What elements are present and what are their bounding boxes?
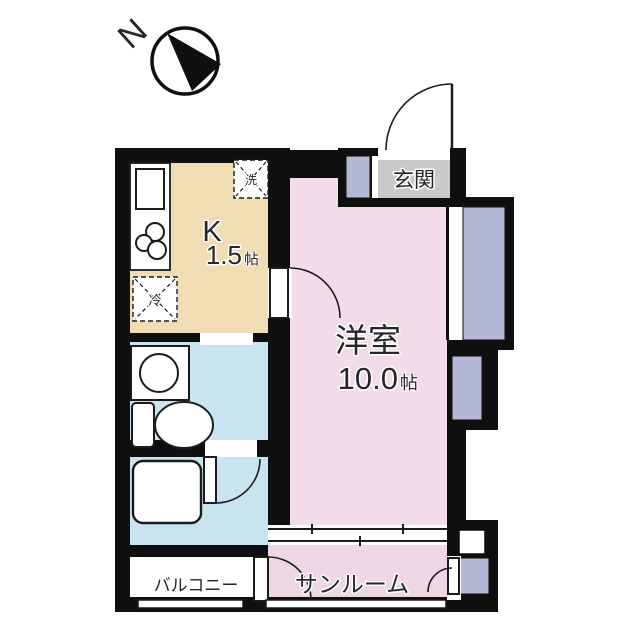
meter-box	[459, 530, 485, 554]
closet-a-door	[447, 207, 463, 340]
shoe-cabinet-gap	[372, 156, 378, 198]
living-room-size-unit: 帖	[400, 373, 418, 393]
bath-door-leaf	[204, 457, 216, 503]
washer-label: 洗	[245, 173, 257, 187]
kitchen-size: 1.5	[206, 240, 242, 270]
living-room-label: 洋室	[335, 322, 401, 359]
entrance-opening	[378, 148, 450, 160]
toilet-bowl	[155, 402, 213, 448]
washing-machine-box: 洗	[234, 160, 268, 198]
sunroom-left-door-leaf	[254, 557, 268, 601]
closet-b	[452, 356, 482, 420]
living-room-size: 10.0	[338, 361, 398, 396]
north-label: N	[111, 11, 155, 56]
kitchen-sink	[136, 169, 164, 209]
compass: N	[111, 11, 221, 94]
bathroom-fixtures	[133, 461, 201, 523]
floor-plan-page: 洗 冷 N 玄関 K 1.5 帖 洋室 10.0 帖 サンルーム バル	[0, 0, 640, 640]
bathtub	[133, 461, 201, 523]
toilet-tank	[132, 403, 154, 447]
sliding-window	[268, 524, 447, 546]
pipe-space	[459, 558, 489, 594]
fridge-label: 冷	[148, 293, 161, 308]
bath-door-opening	[205, 440, 257, 457]
fridge-box: 冷	[133, 277, 177, 321]
closet-a	[463, 207, 505, 340]
sunroom-right-door-leaf	[448, 558, 459, 594]
balcony-railing	[138, 600, 243, 608]
shoe-cabinet	[346, 156, 370, 198]
genkan-label: 玄関	[393, 169, 435, 192]
washroom-door-opening	[200, 333, 253, 345]
railings	[138, 600, 446, 608]
stove-burner-3	[148, 241, 166, 259]
washbasin-bowl	[140, 354, 178, 392]
entrance-door-arc	[386, 84, 452, 150]
sunroom-label: サンルーム	[295, 571, 409, 597]
closet-a-front-line	[446, 207, 449, 340]
floor-plan: 洗 冷 N 玄関 K 1.5 帖 洋室 10.0 帖 サンルーム バル	[0, 0, 640, 640]
room-door-leaf	[270, 268, 288, 318]
balcony-label: バルコニー	[154, 576, 239, 595]
sunroom-railing	[266, 600, 446, 608]
kitchen-size-unit: 帖	[244, 251, 259, 268]
